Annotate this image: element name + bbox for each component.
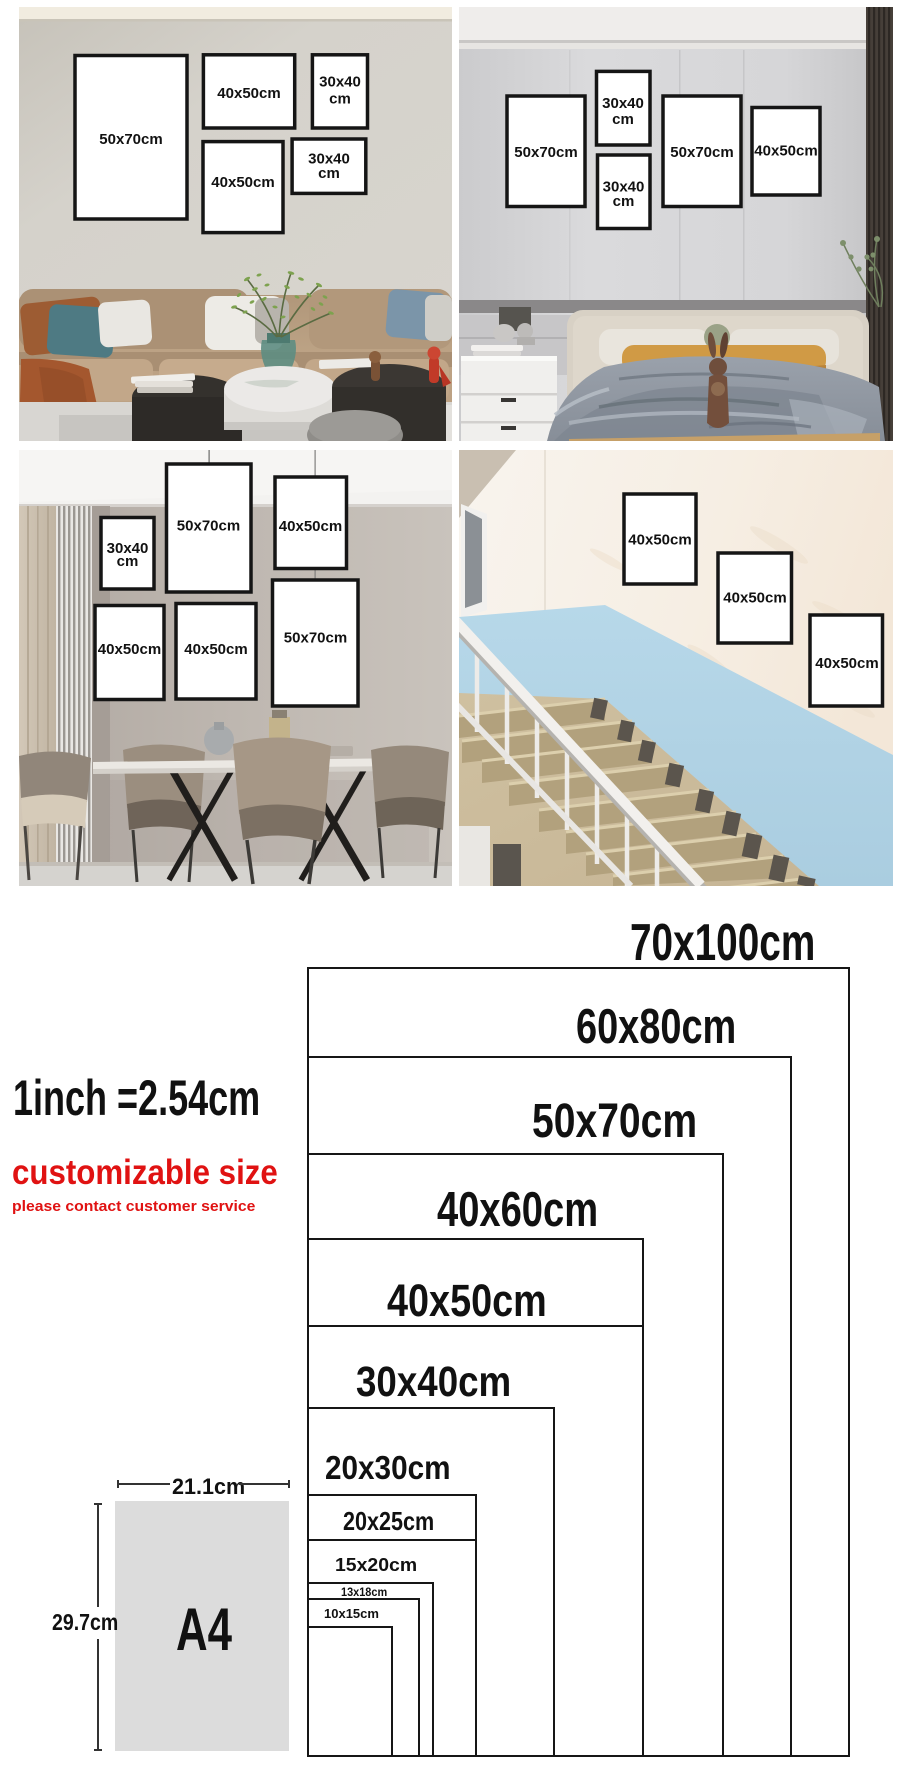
svg-text:40x50cm: 40x50cm [217, 85, 280, 102]
svg-text:40x50cm: 40x50cm [279, 518, 342, 535]
svg-text:40x50cm: 40x50cm [98, 641, 161, 658]
svg-text:40x50cm: 40x50cm [211, 174, 274, 191]
svg-text:40x50cm: 40x50cm [815, 655, 878, 672]
svg-text:cm: cm [329, 91, 351, 108]
svg-text:50x70cm: 50x70cm [514, 144, 577, 161]
svg-text:30x40: 30x40 [319, 74, 361, 91]
svg-text:cm: cm [318, 165, 340, 182]
svg-text:50x70cm: 50x70cm [177, 518, 240, 535]
svg-text:50x70cm: 50x70cm [670, 144, 733, 161]
svg-text:50x70cm: 50x70cm [99, 131, 162, 148]
svg-text:40x50cm: 40x50cm [184, 641, 247, 658]
svg-text:30x40: 30x40 [602, 95, 644, 112]
svg-text:cm: cm [117, 553, 139, 570]
svg-text:40x50cm: 40x50cm [723, 590, 786, 607]
svg-text:cm: cm [612, 111, 634, 128]
svg-text:40x50cm: 40x50cm [754, 143, 817, 160]
svg-text:40x50cm: 40x50cm [628, 532, 691, 549]
svg-text:cm: cm [613, 193, 635, 210]
svg-text:50x70cm: 50x70cm [284, 630, 347, 647]
